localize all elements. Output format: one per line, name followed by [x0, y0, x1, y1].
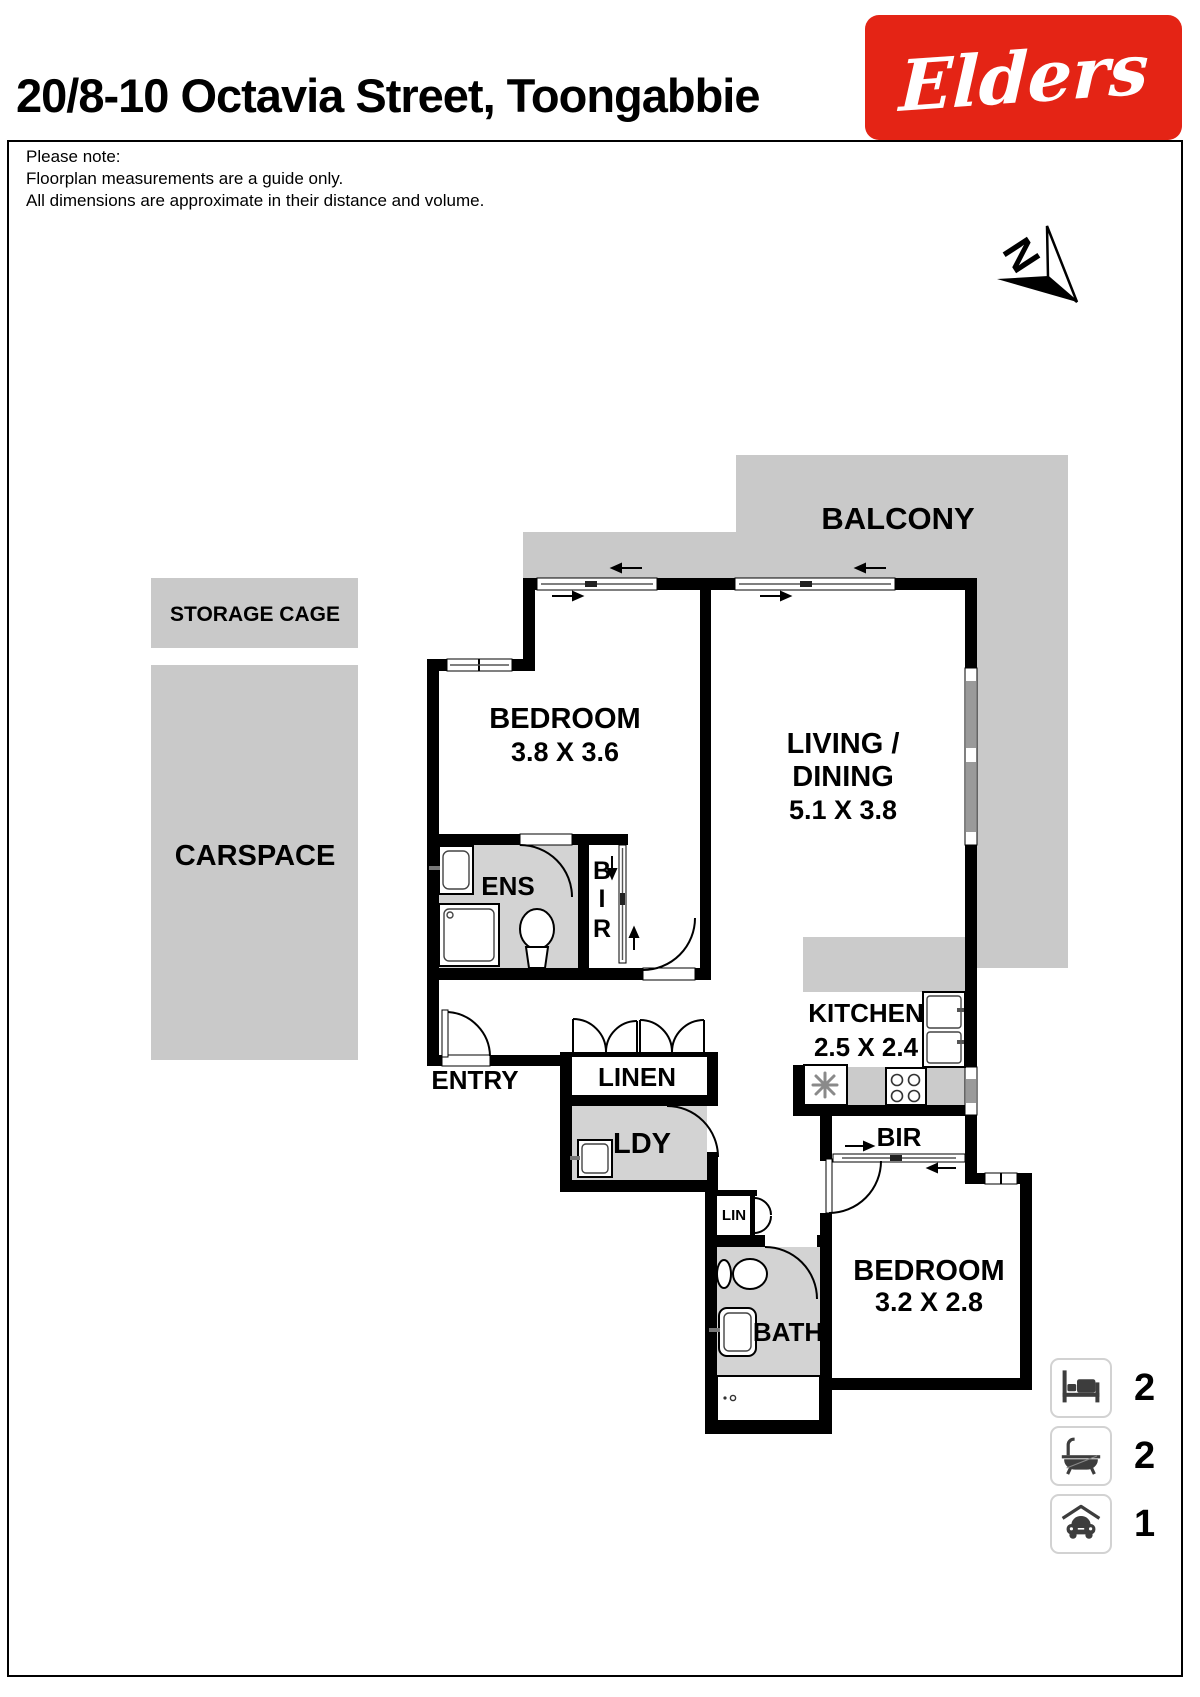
bedroom2-door-leaf: [826, 1159, 832, 1213]
bath-icon: [1050, 1426, 1112, 1486]
ens-shower: [439, 904, 499, 966]
lin-bifold-doors: [754, 1198, 771, 1233]
label-living-dims: 5.1 X 3.8: [789, 795, 897, 825]
property-summary: 2 2: [1050, 1358, 1180, 1562]
bathrooms-row: 2: [1050, 1426, 1180, 1486]
label-bir2: BIR: [877, 1122, 922, 1152]
bed-icon: [1050, 1358, 1112, 1418]
entry-door-arc: [448, 1012, 490, 1056]
label-ldy: LDY: [613, 1128, 671, 1160]
label-living-1: LIVING /: [787, 728, 900, 760]
label-ens: ENS: [481, 871, 534, 901]
label-living-2: DINING: [792, 761, 894, 793]
floorplan-drawing: BALCONY STORAGE CAGE CARSPACE BEDROOM 3.…: [0, 0, 1200, 1697]
label-balcony: BALCONY: [821, 501, 975, 536]
label-bedroom1-dims: 3.8 X 3.6: [511, 737, 619, 767]
compass-n-label: N: [994, 229, 1050, 280]
kitchen-cooktop: [886, 1068, 926, 1105]
label-entry: ENTRY: [431, 1065, 518, 1095]
entry-door-leaf: [442, 1010, 448, 1057]
label-carspace: CARSPACE: [175, 840, 336, 872]
linen-bifold-doors: [573, 1019, 704, 1052]
bedroom1-door-arc: [643, 918, 695, 970]
bed-count: 2: [1134, 1367, 1155, 1410]
car-icon: [1050, 1494, 1112, 1554]
bedroom2-door-arc: [829, 1161, 881, 1213]
label-bedroom1: BEDROOM: [489, 703, 640, 735]
bedrooms-row: 2: [1050, 1358, 1180, 1418]
bath-count: 2: [1134, 1435, 1155, 1478]
kitchen-fridge: [923, 992, 965, 1067]
north-compass-icon: N: [994, 226, 1077, 302]
label-bir-i: I: [599, 885, 606, 913]
label-bedroom2-dims: 3.2 X 2.8: [875, 1287, 983, 1317]
car-count: 1: [1134, 1503, 1155, 1546]
ens-door-gap: [520, 834, 572, 845]
label-bath: BATH: [753, 1317, 823, 1347]
bath-toilet: [717, 1259, 767, 1289]
label-kitchen: KITCHEN: [808, 998, 924, 1028]
label-bir-r: R: [593, 915, 611, 943]
floorplan-page: 20/8-10 Octavia Street, Toongabbie Elder…: [0, 0, 1200, 1697]
carspaces-row: 1: [1050, 1494, 1180, 1554]
kitchen-bench-top: [803, 937, 965, 992]
label-linen: LINEN: [598, 1062, 676, 1092]
label-bir-b: B: [593, 857, 611, 885]
kitchen-sink: [804, 1065, 847, 1105]
bathtub: [717, 1376, 820, 1421]
label-kitchen-dims: 2.5 X 2.4: [814, 1032, 919, 1062]
label-bedroom2: BEDROOM: [853, 1255, 1004, 1287]
label-storage-cage: STORAGE CAGE: [170, 603, 340, 626]
label-lin: LIN: [722, 1207, 746, 1224]
